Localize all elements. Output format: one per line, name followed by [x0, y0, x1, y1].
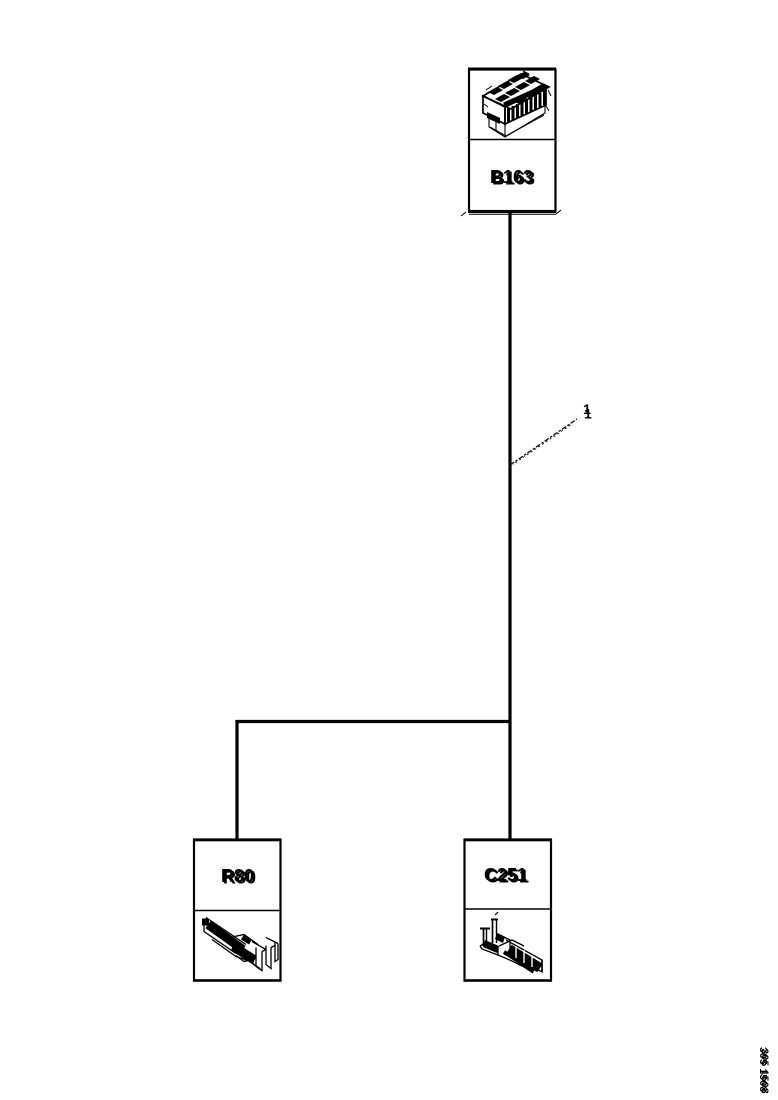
svg-text:R80: R80: [223, 868, 256, 888]
svg-text:C251: C251: [486, 867, 529, 887]
svg-text:305 1508: 305 1508: [759, 1049, 770, 1094]
svg-text:1: 1: [584, 406, 592, 422]
svg-text:B163: B163: [492, 169, 535, 189]
